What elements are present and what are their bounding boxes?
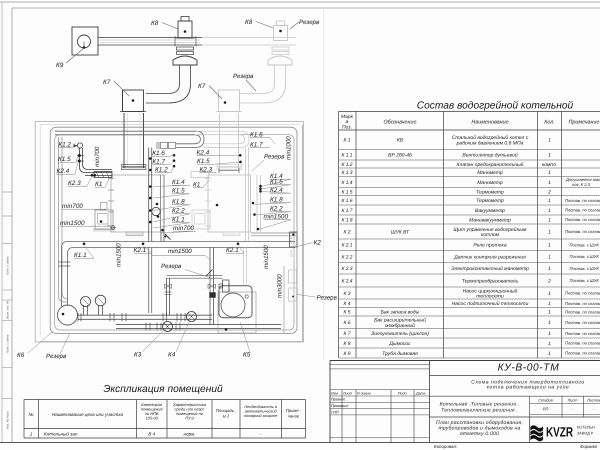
svg-text:Резерв: Резерв: [264, 154, 285, 161]
svg-text:Постав. с ШУК: Постав. с ШУК: [570, 242, 600, 247]
svg-text:Бак запаса воды: Бак запаса воды: [381, 310, 420, 316]
svg-text:1: 1: [548, 351, 551, 357]
svg-text:Постав. по соглас: Постав. по соглас: [565, 331, 600, 336]
svg-text:Электроконтактный манометр: Электроконтактный манометр: [451, 266, 529, 272]
svg-text:Постав. по соглас: Постав. по соглас: [565, 341, 600, 346]
svg-text:Инв. № подл.: Инв. № подл.: [6, 411, 10, 430]
svg-text:Постав. по соглас: Постав. по соглас: [565, 320, 600, 325]
svg-text:Постав. по соглас: Постав. по соглас: [565, 291, 600, 296]
svg-text:Золоуловитель (циклон): Золоуловитель (циклон): [371, 331, 429, 337]
svg-text:котлом: котлом: [481, 232, 500, 238]
svg-text:Постав. по соглас: Постав. по соглас: [565, 217, 600, 222]
svg-text:1: 1: [30, 432, 33, 437]
svg-text:Клапан предохранительный: Клапан предохранительный: [457, 162, 524, 168]
svg-text:1: 1: [548, 291, 551, 297]
svg-text:Постав. по соглас: Постав. по соглас: [565, 229, 600, 234]
svg-text:К7: К7: [198, 83, 206, 90]
svg-text:Постав. с ШУК: Постав. с ШУК: [570, 266, 600, 271]
svg-text:КУ-В-00-ТМ: КУ-В-00-ТМ: [498, 363, 560, 374]
svg-text:Проект.: Проект.: [331, 398, 346, 402]
svg-text:Взам. инв. №: Взам. инв. №: [6, 300, 10, 319]
svg-text:Примечание: Примечание: [568, 119, 599, 125]
svg-text:1: 1: [548, 208, 551, 214]
svg-text:Котельный зал: Котельный зал: [44, 432, 78, 437]
svg-text:Лист: Лист: [567, 398, 578, 402]
svg-text:min1500: min1500: [168, 248, 192, 255]
svg-text:К 3: К 3: [344, 291, 351, 297]
svg-text:К 2.3: К 2.3: [341, 266, 352, 272]
svg-text:К5: К5: [243, 352, 251, 359]
svg-text:min700: min700: [94, 146, 101, 167]
svg-text:К 1.7: К 1.7: [341, 208, 352, 214]
svg-text:-: -: [572, 406, 574, 411]
svg-text:Реле протока: Реле протока: [473, 243, 506, 249]
svg-text:чание: чание: [288, 414, 300, 419]
svg-text:норм.: норм.: [183, 432, 195, 437]
svg-text:1: 1: [548, 229, 551, 235]
svg-text:К 4: К 4: [344, 301, 351, 307]
svg-text:1: 1: [548, 320, 551, 326]
svg-text:Наименование цеха или участка: Наименование цеха или участка: [52, 412, 124, 417]
svg-text:компл.: компл.: [542, 163, 557, 168]
svg-text:Обозначение: Обозначение: [383, 119, 416, 125]
svg-text:К2: К2: [314, 240, 322, 247]
svg-text:КВ: КВ: [397, 138, 404, 144]
svg-text:Резерв: Резерв: [317, 295, 338, 302]
svg-text:К3: К3: [134, 352, 142, 359]
svg-text:В 4: В 4: [148, 432, 155, 437]
svg-text:Вентилятор дутьевой: Вентилятор дутьевой: [462, 153, 517, 159]
svg-text:ГИП: ГИП: [331, 410, 339, 414]
svg-text:К 8: К 8: [344, 341, 351, 347]
svg-text:105-03: 105-03: [145, 416, 158, 421]
svg-text:№: №: [29, 412, 34, 417]
svg-text:Постав. по соглас: Постав. по соглас: [565, 301, 600, 306]
svg-text:Постав. по соглас: Постав. по соглас: [565, 351, 600, 356]
svg-text:отметку 0,000: отметку 0,000: [460, 431, 499, 437]
svg-text:К 1.4: К 1.4: [341, 180, 352, 186]
svg-text:К 1: К 1: [344, 138, 351, 144]
svg-text:Изм: Изм: [331, 391, 338, 395]
svg-text:рабочим давлением 0,6 МПа: рабочим давлением 0,6 МПа: [456, 140, 524, 146]
svg-text:Термометр: Термометр: [476, 198, 504, 204]
svg-text:Дымосос: Дымосос: [388, 341, 411, 347]
svg-text:Подп.: Подп.: [398, 391, 408, 395]
svg-text:К4: К4: [168, 352, 176, 359]
svg-text:Мановакуумметр: Мановакуумметр: [469, 217, 511, 223]
svg-text:К 1.5: К 1.5: [341, 189, 352, 195]
svg-text:К 1.6: К 1.6: [341, 198, 352, 204]
svg-text:К 2: К 2: [344, 229, 351, 235]
svg-text:К8: К8: [151, 20, 159, 27]
svg-text:2: 2: [547, 189, 551, 195]
svg-text:К 2.1: К 2.1: [341, 243, 352, 249]
svg-text:Подп. и дата: Подп. и дата: [6, 256, 10, 275]
svg-text:1: 1: [548, 331, 551, 337]
svg-text:Манометр: Манометр: [477, 170, 503, 176]
svg-text:1: 1: [548, 310, 551, 316]
svg-text:Дата: Дата: [415, 391, 425, 395]
svg-text:К 1.8: К 1.8: [341, 217, 352, 223]
svg-text:Подп. и дата: Подп. и дата: [6, 334, 10, 353]
svg-text:Вакуумметр: Вакуумметр: [475, 208, 505, 214]
svg-text:Насос подпиточный теплосети: Насос подпиточный теплосети: [452, 301, 529, 307]
svg-text:Постав. по соглас: Постав. по соглас: [565, 208, 600, 213]
svg-text:Постав. по соглас: Постав. по соглас: [565, 309, 600, 314]
svg-text:ЗАВОД Р: ЗАВОД Р: [577, 432, 594, 436]
svg-text:ЩУК ВТ: ЩУК ВТ: [290, 236, 293, 244]
svg-text:К 2.4: К 2.4: [341, 278, 352, 284]
svg-text:мембранный: мембранный: [385, 323, 415, 329]
svg-text:поз. К 2.3: поз. К 2.3: [572, 182, 591, 187]
svg-text:Экспликация помещений: Экспликация помещений: [103, 384, 223, 395]
svg-text:Резерв: Резерв: [46, 353, 67, 360]
svg-text:К 5: К 5: [344, 310, 351, 316]
svg-text:К 7: К 7: [344, 331, 351, 337]
svg-text:котла работающего на угле: котла работающего на угле: [487, 385, 570, 391]
svg-text:Лист: Лист: [342, 391, 352, 395]
svg-text:-: -: [260, 432, 262, 437]
svg-text:теплосети: теплосети: [476, 294, 504, 300]
svg-text:Поз.: Поз.: [342, 124, 352, 130]
svg-text:К 1.1: К 1.1: [341, 153, 352, 159]
svg-text:Труба дымовая: Труба дымовая: [382, 351, 418, 357]
svg-text:м 2: м 2: [223, 414, 230, 419]
svg-text:Манометр: Манометр: [477, 180, 503, 186]
svg-text:К9: К9: [56, 62, 64, 69]
svg-text:1: 1: [548, 266, 551, 272]
svg-text:К7: К7: [103, 79, 111, 86]
svg-text:Постав. с ШУК: Постав. с ШУК: [570, 254, 600, 259]
svg-text:Постав. по соглас: Постав. по соглас: [565, 198, 600, 203]
svg-text:К 9: К 9: [344, 351, 351, 357]
svg-text:Резерв: Резерв: [299, 19, 320, 26]
svg-text:К 1.3: К 1.3: [341, 170, 352, 176]
svg-text:Термопреобразователь: Термопреобразователь: [462, 278, 519, 284]
svg-text:2: 2: [547, 278, 551, 284]
svg-text:1: 1: [548, 180, 551, 186]
svg-text:1: 1: [548, 170, 551, 176]
svg-text:ШУК ВТ: ШУК ВТ: [391, 229, 410, 235]
svg-text:К 2.2: К 2.2: [341, 254, 352, 260]
svg-text:min1500: min1500: [263, 245, 270, 269]
svg-text:К 6: К 6: [344, 320, 351, 326]
svg-text:Площадь ,: Площадь ,: [216, 408, 237, 413]
svg-text:Резерв: Резерв: [233, 73, 254, 80]
svg-text:Формат: Формат: [580, 444, 598, 449]
svg-text:Наименование: Наименование: [471, 119, 508, 125]
svg-text:Кол.: Кол.: [544, 119, 555, 125]
svg-text:пожарной защите: пожарной защите: [244, 413, 278, 418]
svg-text:min1500: min1500: [116, 243, 123, 267]
svg-text:Резерв: Резерв: [161, 263, 182, 270]
svg-text:ЩУК ВТ: ЩУК ВТ: [290, 249, 293, 257]
svg-text:1: 1: [548, 153, 551, 159]
svg-text:Проверил: Проверил: [331, 404, 349, 408]
svg-text:1: 1: [548, 341, 551, 347]
svg-text:Тепломеханические решения .: Тепломеханические решения .: [441, 408, 518, 414]
svg-text:-: -: [593, 406, 595, 411]
svg-text:Постав. с ШУК: Постав. с ШУК: [570, 278, 600, 283]
svg-text:КОТЕЛЬН: КОТЕЛЬН: [577, 426, 595, 430]
svg-text:К 1.2: К 1.2: [341, 162, 352, 168]
svg-text:1: 1: [548, 243, 551, 249]
svg-text:Листов: Листов: [586, 398, 600, 402]
svg-text:min1000: min1000: [286, 136, 293, 160]
svg-text:РП: РП: [543, 406, 550, 411]
svg-text:Термометр: Термометр: [476, 189, 504, 195]
svg-text:1: 1: [548, 301, 551, 307]
svg-text:1: 1: [548, 217, 551, 223]
svg-text:Стадия: Стадия: [538, 398, 552, 402]
svg-text:min3000: min3000: [277, 274, 284, 298]
svg-text:Приме -: Приме -: [286, 408, 302, 413]
svg-text:ПУЭ: ПУЭ: [185, 416, 194, 421]
svg-text:Состав водогрейной котельной: Состав водогрейной котельной: [417, 101, 574, 112]
svg-text:N докум: N докум: [357, 391, 371, 395]
svg-text:Датчик контроля разрежения: Датчик контроля разрежения: [453, 254, 526, 260]
svg-text:Копировал:: Копировал:: [434, 444, 458, 449]
svg-text:1: 1: [548, 138, 551, 144]
svg-text:ВР 280-46: ВР 280-46: [388, 153, 412, 159]
svg-text:К8: К8: [245, 19, 253, 26]
svg-text:Марк: Марк: [341, 114, 354, 120]
svg-text:К6: К6: [17, 352, 25, 359]
svg-text:1: 1: [548, 198, 551, 204]
svg-text:1: 1: [548, 254, 551, 260]
svg-text:KVZR: KVZR: [546, 425, 573, 440]
